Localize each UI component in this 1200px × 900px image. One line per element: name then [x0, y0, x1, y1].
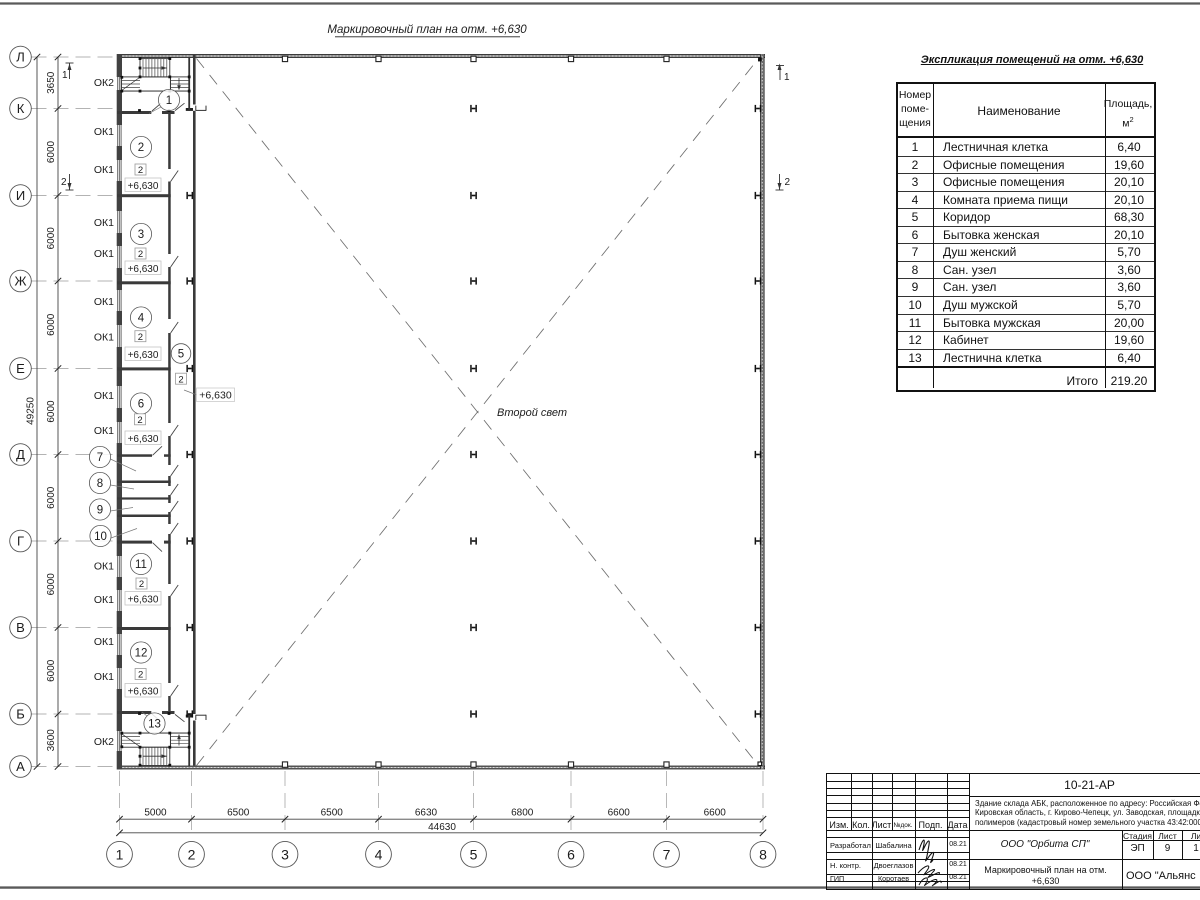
svg-text:ОК1: ОК1	[94, 594, 114, 606]
svg-text:2: 2	[138, 165, 143, 176]
svg-text:Ж: Ж	[14, 274, 26, 289]
svg-text:5000: 5000	[144, 808, 167, 819]
svg-text:2: 2	[188, 846, 196, 862]
svg-text:6000: 6000	[46, 400, 57, 423]
svg-text:10: 10	[94, 531, 107, 543]
svg-text:Л: Л	[16, 50, 25, 65]
svg-text:3600: 3600	[46, 729, 57, 752]
svg-text:+6,630: +6,630	[128, 686, 159, 697]
svg-text:2: 2	[178, 374, 183, 385]
svg-text:3650: 3650	[46, 71, 57, 94]
svg-text:4: 4	[375, 846, 383, 862]
svg-text:7: 7	[97, 452, 103, 464]
svg-text:6600: 6600	[608, 808, 631, 819]
svg-text:6: 6	[567, 846, 575, 862]
svg-text:ОК1: ОК1	[94, 561, 114, 573]
svg-text:6000: 6000	[46, 659, 57, 682]
svg-text:ОК1: ОК1	[94, 425, 114, 437]
svg-text:Маркировочный план на отм. +6,: Маркировочный план на отм. +6,630	[327, 24, 527, 36]
svg-text:12: 12	[135, 648, 148, 660]
svg-text:6800: 6800	[511, 808, 534, 819]
svg-text:6: 6	[138, 399, 144, 411]
svg-text:6000: 6000	[46, 313, 57, 336]
svg-text:6000: 6000	[46, 573, 57, 596]
svg-text:7: 7	[663, 846, 671, 862]
svg-text:11: 11	[135, 559, 147, 571]
svg-text:8: 8	[97, 478, 103, 490]
svg-text:4: 4	[138, 313, 145, 325]
svg-text:ОК1: ОК1	[94, 126, 114, 138]
svg-text:6000: 6000	[46, 227, 57, 250]
svg-text:В: В	[16, 620, 25, 635]
svg-text:2: 2	[785, 177, 791, 188]
svg-text:К: К	[17, 101, 25, 116]
svg-text:6000: 6000	[46, 486, 57, 509]
svg-text:Г: Г	[17, 534, 24, 549]
svg-text:2: 2	[61, 177, 67, 188]
svg-text:8: 8	[759, 846, 767, 862]
svg-text:6000: 6000	[46, 140, 57, 163]
svg-text:1: 1	[166, 95, 172, 107]
svg-text:5: 5	[470, 846, 478, 862]
svg-text:Б: Б	[16, 707, 25, 722]
svg-text:ОК1: ОК1	[94, 164, 114, 176]
svg-text:ОК1: ОК1	[94, 296, 114, 308]
svg-text:ОК1: ОК1	[94, 671, 114, 683]
svg-text:ОК1: ОК1	[94, 636, 114, 648]
svg-text:1: 1	[62, 70, 68, 81]
svg-text:44630: 44630	[428, 822, 456, 833]
svg-text:+6,630: +6,630	[128, 181, 159, 192]
svg-text:5: 5	[178, 349, 184, 361]
svg-text:Второй свет: Второй свет	[497, 407, 567, 419]
svg-text:2: 2	[138, 670, 143, 681]
svg-text:6600: 6600	[704, 808, 727, 819]
svg-text:13: 13	[148, 719, 161, 731]
svg-text:2: 2	[138, 249, 143, 260]
svg-text:3: 3	[138, 229, 144, 241]
svg-text:6500: 6500	[227, 808, 250, 819]
svg-text:Д: Д	[16, 447, 25, 462]
svg-text:Е: Е	[16, 361, 25, 376]
svg-text:+6,630: +6,630	[128, 264, 159, 275]
svg-text:3: 3	[281, 846, 289, 862]
svg-text:2: 2	[138, 332, 143, 343]
svg-text:ОК1: ОК1	[94, 332, 114, 344]
svg-text:1: 1	[784, 72, 790, 83]
svg-text:ОК2: ОК2	[94, 736, 114, 748]
svg-text:+6,630: +6,630	[199, 390, 232, 402]
svg-text:2: 2	[139, 579, 144, 590]
svg-text:+6,630: +6,630	[128, 594, 159, 605]
svg-text:ОК1: ОК1	[94, 217, 114, 229]
svg-text:ОК2: ОК2	[94, 77, 114, 89]
svg-text:1: 1	[116, 846, 124, 862]
svg-text:+6,630: +6,630	[128, 434, 159, 445]
svg-text:6500: 6500	[321, 808, 344, 819]
svg-text:2: 2	[138, 142, 144, 154]
svg-text:ОК1: ОК1	[94, 390, 114, 402]
svg-text:А: А	[16, 759, 25, 774]
svg-text:49250: 49250	[26, 397, 37, 425]
svg-text:6630: 6630	[415, 808, 438, 819]
svg-text:+6,630: +6,630	[128, 350, 159, 361]
svg-text:2: 2	[137, 415, 142, 426]
svg-text:9: 9	[97, 505, 103, 517]
svg-text:И: И	[16, 188, 25, 203]
svg-text:ОК1: ОК1	[94, 248, 114, 260]
